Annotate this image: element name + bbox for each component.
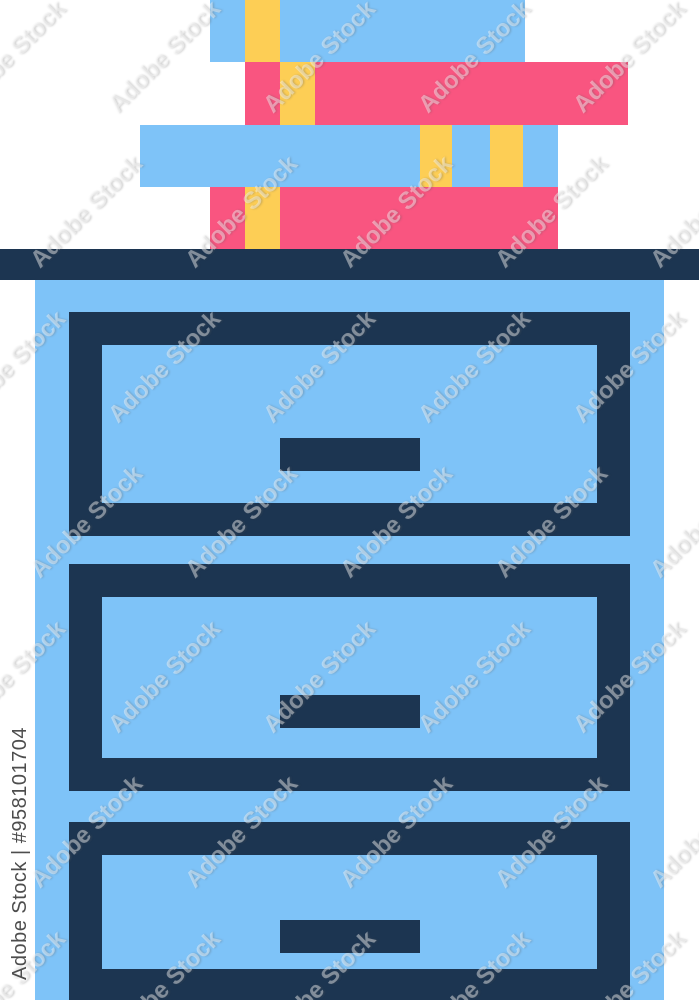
book-stripe [280,62,315,125]
book-stripe [420,125,452,187]
watermark-tile-text: Adobe Stock [103,0,227,119]
drawer-face [102,855,597,969]
cabinet-top [0,249,699,280]
book-top-blue [210,0,525,62]
drawer-2 [69,564,630,791]
watermark-id-text: Adobe Stock | #958101704 [9,727,32,980]
drawer-handle [280,920,420,953]
stock-image-preview: Adobe StockAdobe StockAdobe StockAdobe S… [0,0,699,1000]
book-pink-upper [245,62,628,125]
watermark-tile-text: Adobe Stock [0,0,72,119]
book-blue-lower [140,125,558,187]
book-stripe [490,125,523,187]
drawer-face [102,597,597,758]
drawer-1 [69,312,630,536]
book-pink-bottom [210,187,558,249]
drawer-face [102,345,597,503]
book-stripe [245,187,280,249]
drawer-3 [69,822,630,1000]
drawer-handle [280,695,420,728]
drawer-handle [280,438,420,471]
book-stripe [245,0,280,62]
